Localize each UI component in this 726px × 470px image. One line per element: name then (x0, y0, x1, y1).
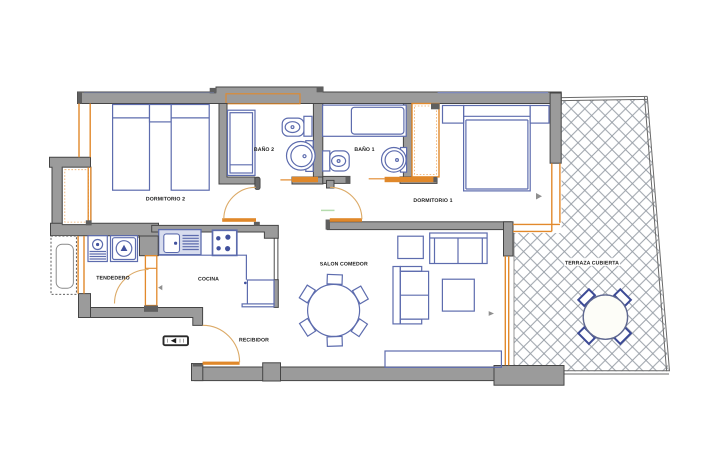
svg-text:COCINA: COCINA (198, 277, 219, 283)
svg-text:BAÑO 2: BAÑO 2 (254, 146, 274, 153)
svg-text:TERRAZA CUBIERTA: TERRAZA CUBIERTA (565, 261, 619, 267)
svg-text:RECIBIDOR: RECIBIDOR (239, 338, 269, 344)
svg-text:TENDEDERO: TENDEDERO (96, 276, 129, 282)
svg-text:DORMITORIO 1: DORMITORIO 1 (413, 198, 452, 204)
svg-text:BAÑO 1: BAÑO 1 (354, 146, 374, 153)
svg-text:DORMITORIO 2: DORMITORIO 2 (146, 197, 185, 203)
svg-text:SALON COMEDOR: SALON COMEDOR (320, 261, 368, 267)
